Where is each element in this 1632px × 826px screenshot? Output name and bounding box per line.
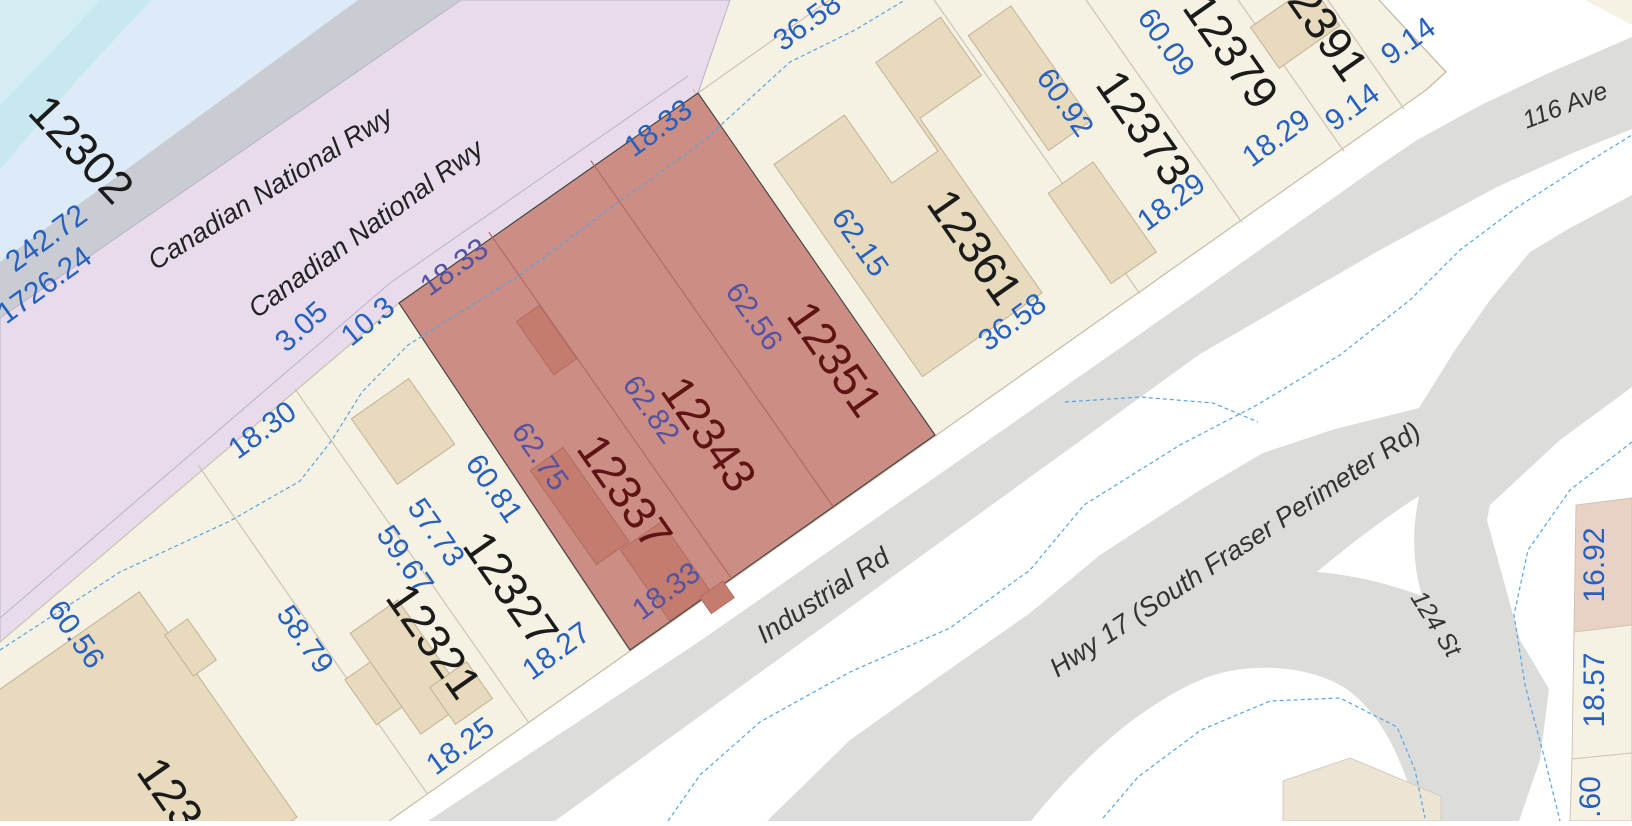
svg-text:18.57: 18.57: [1578, 652, 1611, 727]
svg-text:.60: .60: [1574, 776, 1607, 818]
svg-text:16.92: 16.92: [1578, 527, 1611, 602]
